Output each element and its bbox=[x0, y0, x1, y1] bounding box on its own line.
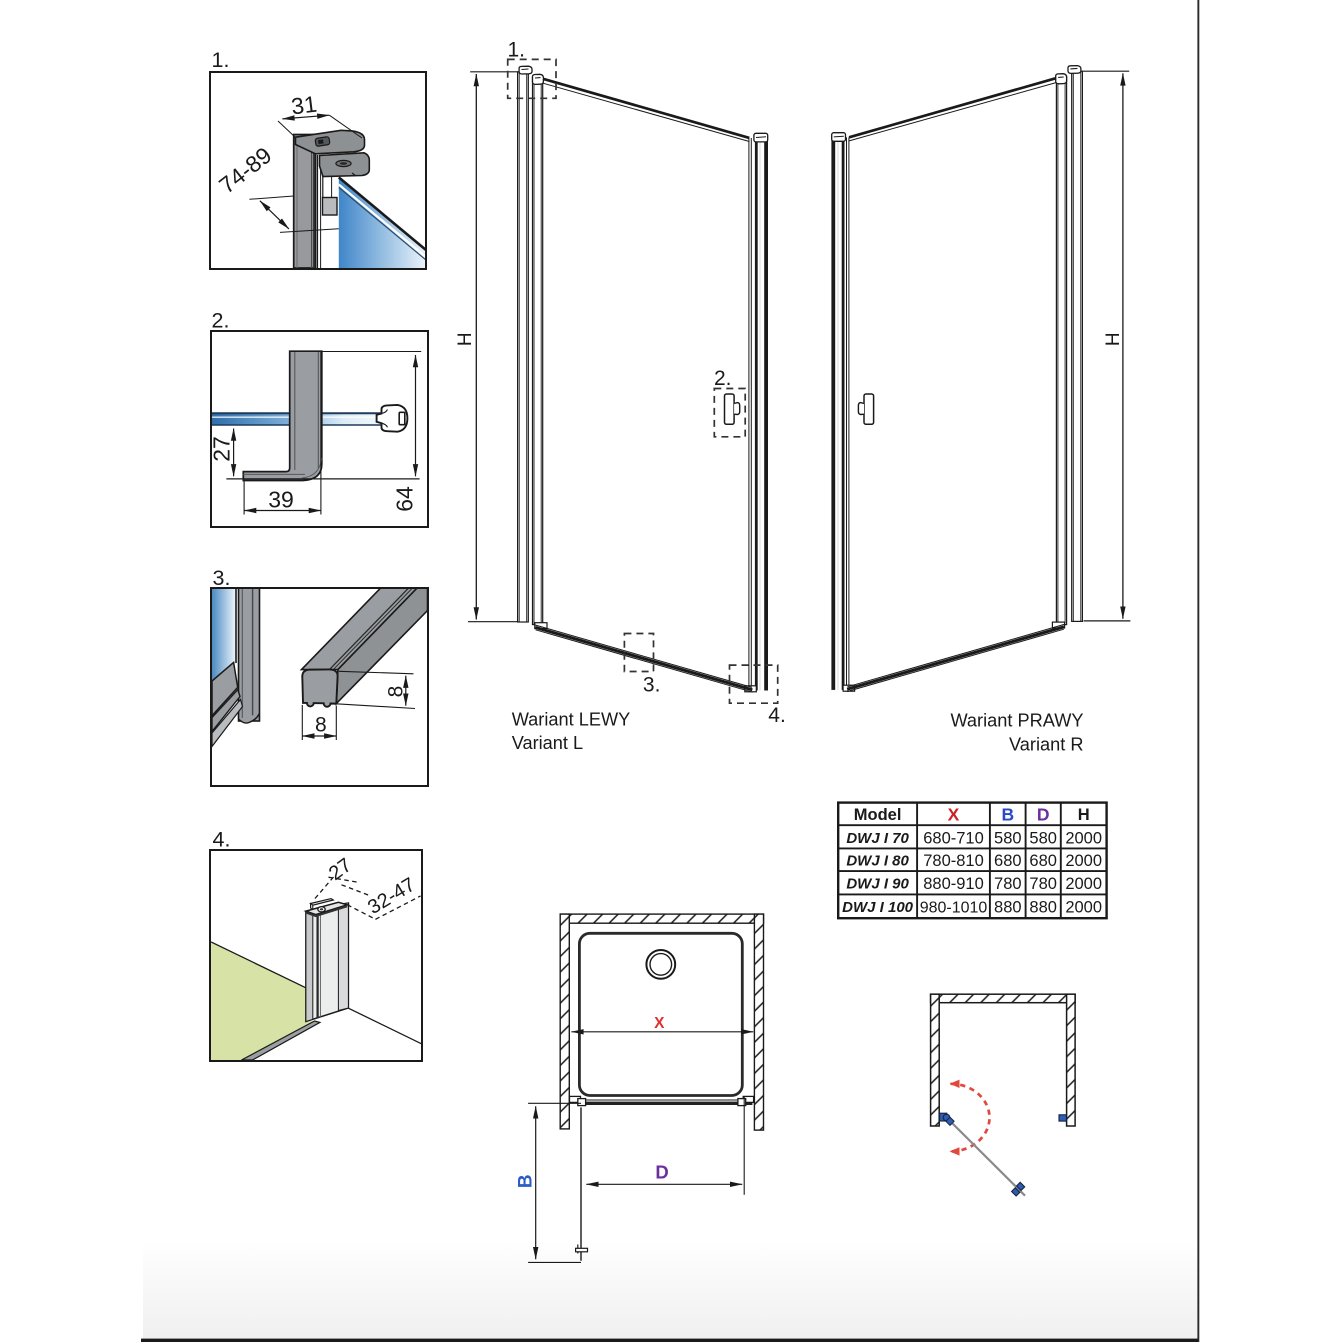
svg-text:2000: 2000 bbox=[1065, 875, 1102, 893]
svg-text:880-910: 880-910 bbox=[923, 875, 984, 893]
svg-text:680-710: 680-710 bbox=[923, 829, 984, 847]
svg-text:31: 31 bbox=[290, 91, 319, 120]
svg-text:Variant L: Variant L bbox=[512, 733, 583, 753]
svg-text:27: 27 bbox=[209, 436, 235, 462]
svg-text:H: H bbox=[1078, 806, 1090, 824]
svg-text:B: B bbox=[1001, 804, 1014, 824]
svg-text:580: 580 bbox=[1029, 829, 1057, 847]
svg-text:780-810: 780-810 bbox=[923, 852, 984, 870]
svg-text:880: 880 bbox=[1029, 899, 1057, 917]
svg-text:2.: 2. bbox=[714, 367, 732, 390]
svg-text:D: D bbox=[655, 1162, 668, 1183]
svg-text:680: 680 bbox=[1029, 852, 1057, 870]
svg-text:H: H bbox=[455, 332, 476, 346]
svg-text:Variant R: Variant R bbox=[1009, 735, 1083, 755]
svg-text:780: 780 bbox=[1029, 875, 1057, 893]
svg-text:X: X bbox=[654, 1015, 665, 1032]
svg-text:2.: 2. bbox=[212, 309, 230, 333]
svg-text:DWJ I 80: DWJ I 80 bbox=[846, 853, 909, 870]
svg-text:3.: 3. bbox=[643, 674, 661, 697]
svg-text:580: 580 bbox=[994, 829, 1022, 847]
svg-text:D: D bbox=[1037, 804, 1050, 824]
svg-text:B: B bbox=[516, 1174, 537, 1188]
svg-text:39: 39 bbox=[268, 487, 294, 513]
svg-text:680: 680 bbox=[994, 852, 1022, 870]
svg-text:H: H bbox=[1103, 332, 1124, 346]
svg-text:8: 8 bbox=[315, 714, 327, 737]
svg-text:2000: 2000 bbox=[1065, 899, 1102, 917]
svg-text:Wariant LEWY: Wariant LEWY bbox=[512, 710, 631, 730]
svg-text:X: X bbox=[948, 804, 960, 824]
svg-text:980-1010: 980-1010 bbox=[920, 900, 988, 917]
svg-text:DWJ I 90: DWJ I 90 bbox=[846, 876, 909, 893]
svg-text:780: 780 bbox=[994, 875, 1022, 893]
svg-text:Wariant PRAWY: Wariant PRAWY bbox=[950, 711, 1083, 731]
svg-text:64: 64 bbox=[392, 486, 418, 512]
svg-text:Model: Model bbox=[854, 806, 902, 824]
svg-text:2000: 2000 bbox=[1065, 829, 1102, 847]
svg-text:1.: 1. bbox=[212, 48, 230, 72]
svg-text:2000: 2000 bbox=[1065, 852, 1102, 870]
svg-text:1.: 1. bbox=[508, 39, 526, 62]
svg-text:8: 8 bbox=[385, 686, 408, 698]
svg-text:4.: 4. bbox=[768, 704, 786, 727]
svg-text:DWJ I 70: DWJ I 70 bbox=[846, 830, 909, 847]
svg-text:3.: 3. bbox=[213, 566, 231, 590]
svg-text:880: 880 bbox=[994, 899, 1022, 917]
svg-text:4.: 4. bbox=[213, 828, 231, 852]
svg-text:DWJ I 100: DWJ I 100 bbox=[842, 899, 914, 916]
